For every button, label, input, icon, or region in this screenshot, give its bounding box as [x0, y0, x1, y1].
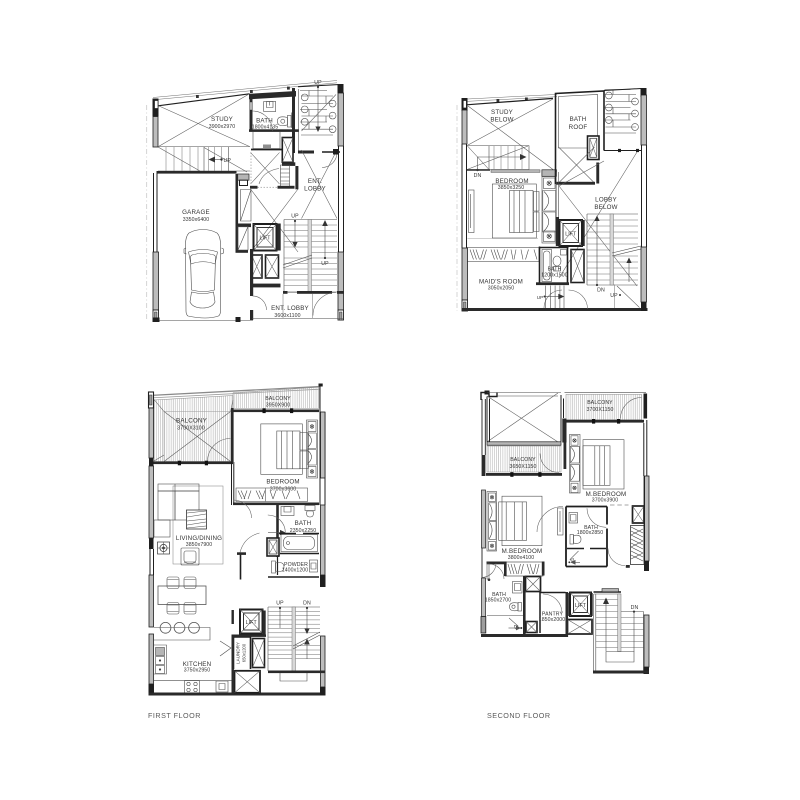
svg-text:UP: UP	[610, 293, 618, 299]
svg-text:3700X3100: 3700X3100	[177, 425, 204, 431]
svg-text:DN: DN	[597, 288, 605, 294]
svg-text:LOBBY: LOBBY	[595, 197, 617, 204]
svg-text:FIRST FLOOR: FIRST FLOOR	[148, 711, 201, 720]
svg-text:ENT.: ENT.	[308, 178, 322, 185]
svg-text:1800x2850: 1800x2850	[577, 530, 604, 536]
svg-text:3050x2050: 3050x2050	[488, 286, 515, 292]
svg-text:DN: DN	[474, 173, 482, 179]
svg-text:BATH: BATH	[570, 116, 587, 123]
svg-text:UP: UP	[321, 261, 329, 267]
svg-text:3350x6400: 3350x6400	[183, 217, 210, 223]
svg-text:LOBBY: LOBBY	[304, 186, 326, 193]
svg-text:3950X900: 3950X900	[266, 403, 290, 409]
svg-text:BALCONY: BALCONY	[587, 400, 613, 406]
svg-text:STUDY: STUDY	[491, 109, 513, 116]
svg-text:3800x4100: 3800x4100	[508, 555, 535, 561]
svg-text:3850x3250: 3850x3250	[498, 185, 525, 191]
svg-text:STUDY: STUDY	[211, 116, 233, 123]
svg-text:1850x2000: 1850x2000	[539, 617, 566, 623]
svg-text:LIFT: LIFT	[575, 603, 587, 609]
svg-text:DN: DN	[303, 601, 311, 607]
svg-text:LIFT: LIFT	[259, 236, 271, 242]
svg-text:1850x2700: 1850x2700	[485, 598, 512, 604]
svg-text:3650X1150: 3650X1150	[509, 464, 536, 470]
svg-text:650x1200: 650x1200	[242, 643, 247, 662]
svg-text:LIFT: LIFT	[565, 232, 577, 238]
svg-text:UP: UP	[537, 295, 543, 300]
svg-text:BATH: BATH	[256, 118, 273, 125]
svg-text:3900x2970: 3900x2970	[209, 124, 236, 130]
svg-text:BALCONY: BALCONY	[510, 457, 536, 463]
svg-text:LAUNDRY: LAUNDRY	[236, 642, 241, 664]
svg-text:LIVING/DINING: LIVING/DINING	[176, 535, 222, 542]
svg-text:UP: UP	[276, 601, 284, 607]
svg-text:GARAGE: GARAGE	[182, 209, 210, 216]
svg-text:MAID'S ROOM: MAID'S ROOM	[479, 279, 523, 286]
svg-text:ROOF: ROOF	[569, 124, 588, 131]
svg-text:1200x1500: 1200x1500	[541, 273, 568, 279]
svg-text:UP: UP	[291, 214, 299, 220]
svg-text:BALCONY: BALCONY	[176, 418, 207, 425]
svg-text:BELOW: BELOW	[594, 204, 617, 211]
svg-text:UP: UP	[224, 158, 232, 164]
svg-text:BALCONY: BALCONY	[265, 396, 291, 402]
svg-text:3850x7900: 3850x7900	[186, 542, 213, 548]
svg-text:3750x2950: 3750x2950	[184, 668, 211, 674]
svg-text:ENT. LOBBY: ENT. LOBBY	[271, 305, 309, 312]
svg-text:LIFT: LIFT	[246, 620, 258, 626]
svg-text:UP: UP	[314, 80, 322, 86]
svg-text:BELOW: BELOW	[490, 117, 513, 124]
svg-text:DN: DN	[631, 605, 639, 611]
svg-text:1400x1200: 1400x1200	[282, 568, 309, 574]
svg-text:1800x4135: 1800x4135	[252, 125, 279, 131]
svg-text:BEDROOM: BEDROOM	[266, 479, 299, 486]
svg-text:3700x3900: 3700x3900	[592, 497, 619, 503]
svg-text:SECOND FLOOR: SECOND FLOOR	[487, 711, 551, 720]
svg-text:3700X1150: 3700X1150	[586, 407, 613, 413]
svg-text:BATH: BATH	[295, 520, 312, 527]
svg-text:3700x3600: 3700x3600	[270, 487, 297, 493]
